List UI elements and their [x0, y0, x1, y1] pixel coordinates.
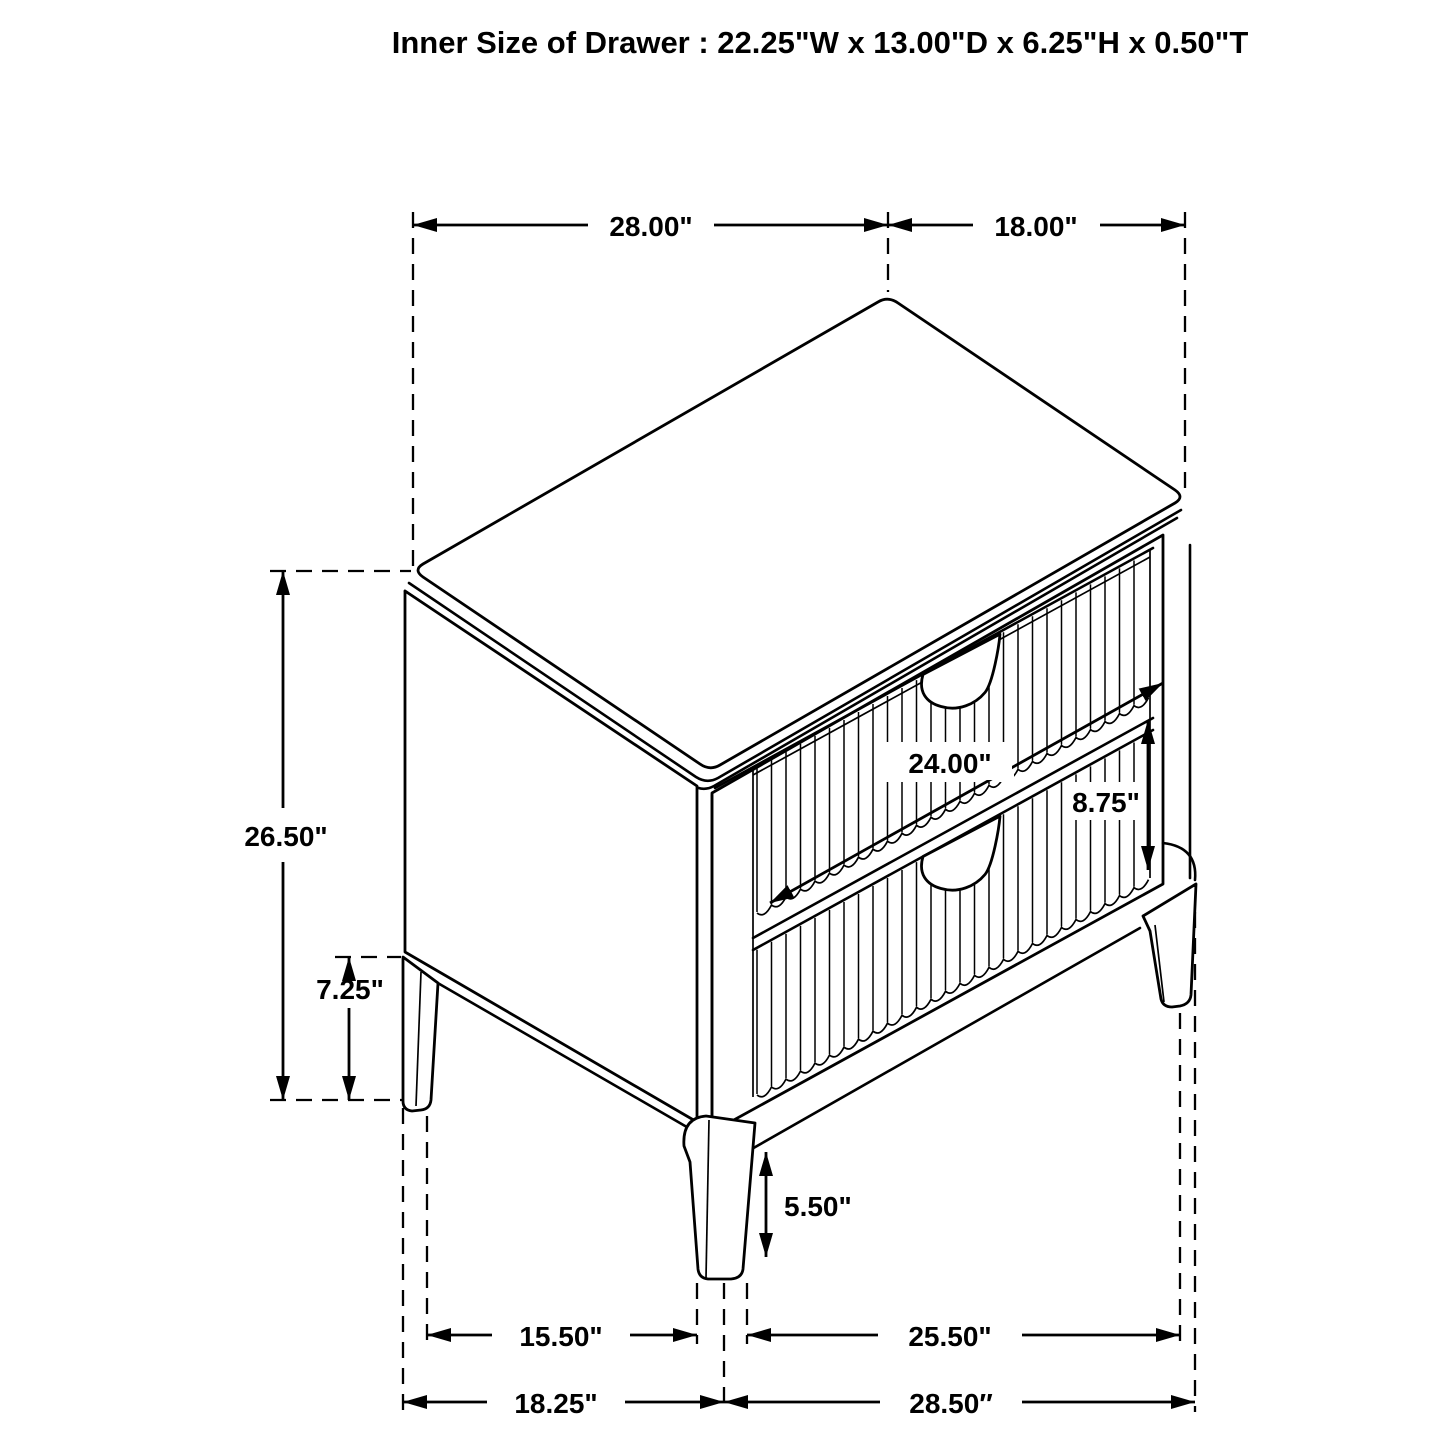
dim-top-width: 28.00" — [609, 211, 692, 242]
dim-base-span-front-right: 25.50" — [908, 1321, 991, 1352]
dim-base-width: 28.50″ — [909, 1388, 992, 1419]
diagram-canvas: 28.00" 18.00" 26.50" 7.25" 24.00" 8.75" … — [0, 0, 1445, 1445]
dim-overall-height: 26.50" — [244, 821, 327, 852]
dim-top-depth: 18.00" — [994, 211, 1077, 242]
dim-leg-clearance: 7.25" — [316, 974, 384, 1005]
dim-base-depth: 18.25" — [514, 1388, 597, 1419]
front-leg — [684, 1116, 755, 1279]
dim-front-leg-height: 5.50" — [784, 1191, 852, 1222]
diagram-title: Inner Size of Drawer : 22.25"W x 13.00"D… — [392, 25, 1249, 60]
dim-drawer-front-height: 8.75" — [1072, 787, 1140, 818]
dim-drawer-width: 24.00" — [908, 748, 991, 779]
nightstand-dimension-diagram: 28.00" 18.00" 26.50" 7.25" 24.00" 8.75" … — [0, 0, 1445, 1445]
right-back-leg — [1143, 884, 1196, 1007]
dim-base-span-front-left: 15.50" — [519, 1321, 602, 1352]
